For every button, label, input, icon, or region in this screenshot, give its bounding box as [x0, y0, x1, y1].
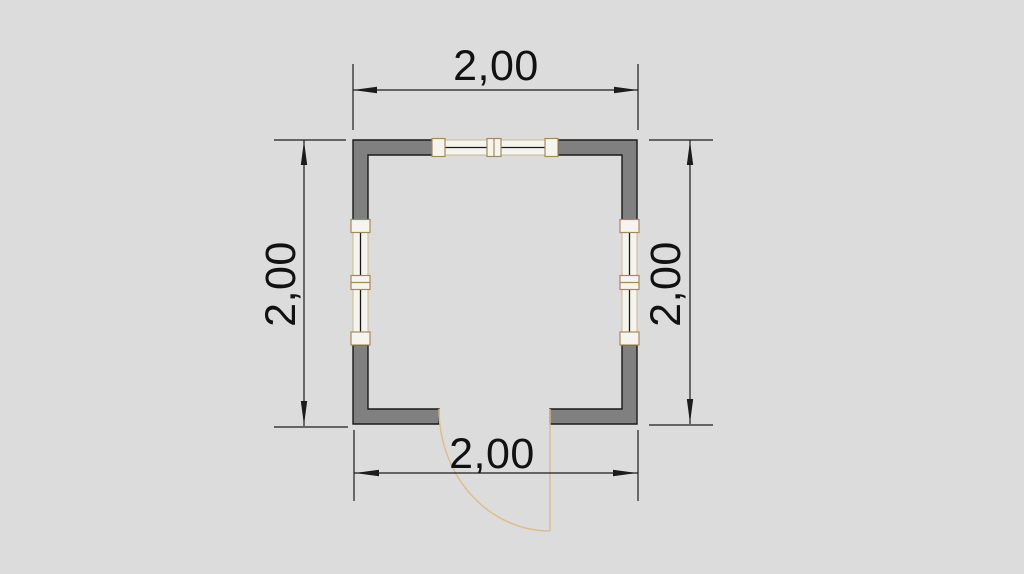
floor-plan-drawing: 2,00 2,00 2,00 2,00	[0, 0, 1024, 574]
window-left	[351, 220, 370, 346]
window-top-frame-left	[432, 139, 445, 157]
window-right-frame-top	[620, 220, 639, 233]
window-right-frame-bottom	[620, 332, 639, 345]
window-right	[620, 220, 639, 346]
window-top	[432, 139, 558, 157]
dimension-label-top: 2,00	[453, 42, 539, 90]
window-top-frame-right	[545, 139, 558, 157]
dimension-label-right: 2,00	[642, 241, 690, 327]
window-left-frame-bottom	[351, 332, 370, 345]
dimension-label-left: 2,00	[257, 241, 305, 327]
dimension-label-bottom: 2,00	[449, 430, 535, 478]
window-left-frame-top	[351, 220, 370, 233]
floor-plan-canvas: 2,00 2,00 2,00 2,00	[0, 0, 1024, 574]
